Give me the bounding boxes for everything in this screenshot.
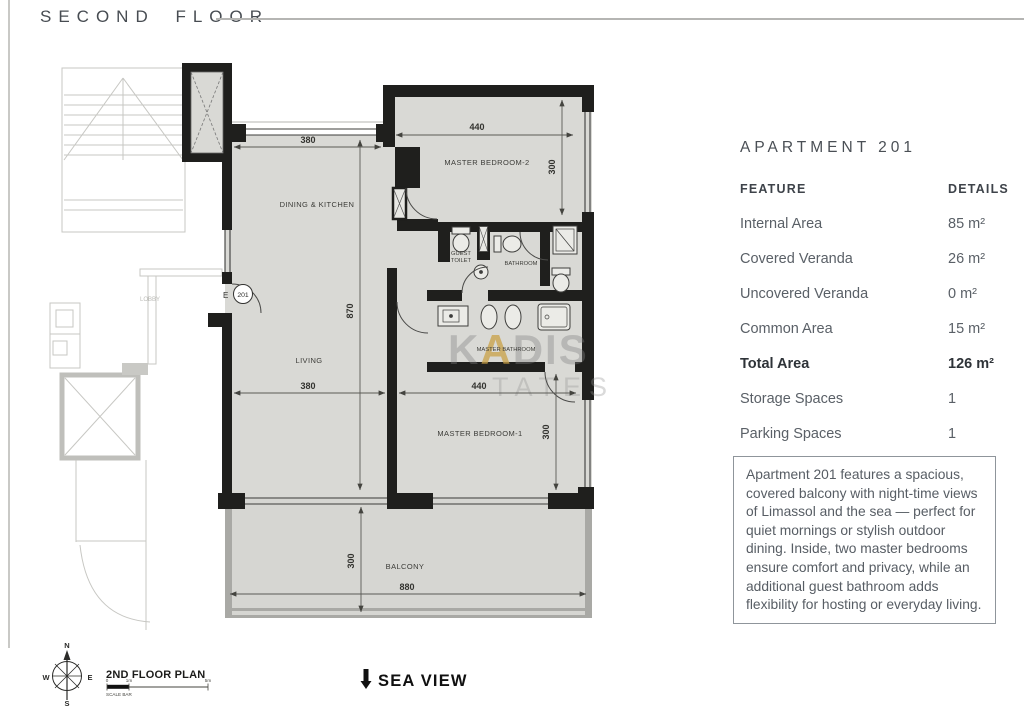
table-row: Common Area 15 m² <box>740 319 1008 339</box>
room-label-dining: DINING & KITCHEN <box>280 200 355 209</box>
dim-mb2-width: 440 <box>469 122 484 132</box>
feature-label: Total Area <box>740 354 948 374</box>
title-rule <box>216 18 1024 20</box>
room-label-mb1: MASTER BEDROOM-1 <box>437 429 522 438</box>
feature-value: 1 <box>948 424 1008 444</box>
dim-mb1-depth: 300 <box>541 424 551 439</box>
scale-5m: 5m <box>205 678 212 683</box>
table-row: Uncovered Veranda 0 m² <box>740 284 1008 304</box>
feature-value: 26 m² <box>948 249 1008 269</box>
dim-living-width: 380 <box>300 381 315 391</box>
dim-height: 870 <box>345 303 355 318</box>
room-label-bathroom: BATHROOM <box>504 261 537 267</box>
compass-e: E <box>87 673 92 682</box>
description-box: Apartment 201 features a spacious, cover… <box>733 456 996 624</box>
scale-0: 0 <box>106 678 109 683</box>
feature-label: Common Area <box>740 319 948 339</box>
feature-label: Internal Area <box>740 214 948 234</box>
scale-1m: 1m <box>126 678 133 683</box>
column-details: DETAILS <box>948 179 1008 199</box>
feature-label: Storage Spaces <box>740 389 948 409</box>
column-feature: FEATURE <box>740 179 948 199</box>
feature-value: 0 m² <box>948 284 1008 304</box>
sea-view-arrow-icon <box>361 669 372 689</box>
lobby-label: LOBBY <box>140 297 160 303</box>
feature-value: 126 m² <box>948 354 1008 374</box>
plan-name: 2ND FLOOR PLAN <box>106 669 205 681</box>
dim-dining-width: 380 <box>300 135 315 145</box>
scale-bar-label: SCALE BAR <box>106 692 132 697</box>
compass-n: N <box>64 641 69 650</box>
room-label-guest-1: GUEST <box>451 251 471 257</box>
scale-bar: 2ND FLOOR PLAN 0 1m 5m SCALE BAR <box>106 669 212 697</box>
floor-plan: LOBBY <box>0 40 722 722</box>
room-label-mb2: MASTER BEDROOM-2 <box>444 158 529 167</box>
sea-view: SEA VIEW <box>361 669 468 690</box>
dim-mb2-depth: 300 <box>547 159 557 174</box>
entry-label: E <box>223 291 228 300</box>
room-label-balcony: BALCONY <box>386 562 425 571</box>
description-text: Apartment 201 features a spacious, cover… <box>746 466 983 615</box>
feature-label: Parking Spaces <box>740 424 948 444</box>
room-label-guest-2: TOILET <box>451 258 472 264</box>
sea-view-label: SEA VIEW <box>378 672 468 690</box>
feature-label: Uncovered Veranda <box>740 284 948 304</box>
entry-number: 201 <box>237 292 249 299</box>
svg-text:TATES: TATES <box>492 372 615 402</box>
dim-balcony-depth: 300 <box>346 553 356 568</box>
table-row: Parking Spaces 1 <box>740 424 1008 444</box>
feature-label: Covered Veranda <box>740 249 948 269</box>
room-label-living: LIVING <box>296 356 323 365</box>
panel-title: APARTMENT 201 <box>740 139 1008 157</box>
dim-balcony-width: 880 <box>399 582 414 592</box>
table-row-total: Total Area 126 m² <box>740 354 1008 374</box>
compass-s: S <box>64 699 69 708</box>
table-row: Storage Spaces 1 <box>740 389 1008 409</box>
table-row: Internal Area 85 m² <box>740 214 1008 234</box>
table-row: Covered Veranda 26 m² <box>740 249 1008 269</box>
compass-icon <box>52 650 82 700</box>
feature-value: 1 <box>948 389 1008 409</box>
compass-w: W <box>42 673 50 682</box>
page-title: SECOND FLOOR <box>40 7 269 27</box>
feature-value: 85 m² <box>948 214 1008 234</box>
dim-mb1-width: 440 <box>471 381 486 391</box>
apartment-details-panel: APARTMENT 201 FEATURE DETAILS Internal A… <box>740 139 1008 459</box>
room-label-master-bath: MASTER BATHROOM <box>477 347 536 353</box>
feature-value: 15 m² <box>948 319 1008 339</box>
table-header: FEATURE DETAILS <box>740 179 1008 199</box>
